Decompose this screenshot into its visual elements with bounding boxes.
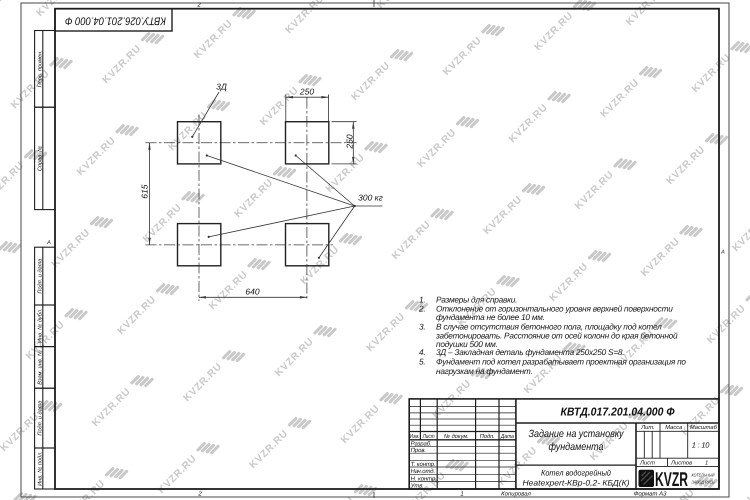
svg-text:300 кг: 300 кг [358, 193, 383, 203]
svg-text:КВТУ.026.201.04.000 Ф: КВТУ.026.201.04.000 Ф [65, 14, 166, 26]
svg-text:А: А [720, 250, 725, 256]
svg-text:Копировал: Копировал [501, 491, 531, 498]
svg-text:Масштаб: Масштаб [690, 424, 718, 431]
svg-text:фундамента: фундамента [549, 441, 604, 453]
svg-text:Инв. № дубл.: Инв. № дубл. [37, 309, 44, 343]
svg-text:Т. контр.: Т. контр. [411, 461, 436, 468]
svg-text:ЗАВОД РУСЬ: ЗАВОД РУСЬ [692, 480, 715, 485]
svg-text:нагрузкам на фундамент.: нагрузкам на фундамент. [436, 366, 533, 376]
svg-text:Котел водогрейный: Котел водогрейный [541, 469, 611, 478]
svg-text:Н. контр.: Н. контр. [411, 475, 437, 482]
svg-text:Подп. и дата: Подп. и дата [37, 259, 44, 294]
svg-text:Лист: Лист [639, 461, 655, 467]
svg-text:Дата: Дата [500, 434, 515, 440]
svg-text:2.: 2. [418, 304, 425, 314]
svg-text:1: 1 [705, 461, 708, 467]
svg-text:Формат А3: Формат А3 [634, 491, 667, 498]
svg-text:Лит.: Лит. [640, 425, 655, 431]
svg-text:Фундамент под котел разрабатыв: Фундамент под котел разрабатывает проект… [436, 356, 686, 366]
svg-text:2: 2 [196, 2, 201, 9]
svg-text:Взам. инв. №: Взам. инв. № [38, 350, 44, 385]
svg-text:640: 640 [245, 287, 259, 297]
svg-text:KVZR: KVZR [655, 469, 688, 491]
svg-text:КОТЕЛЬНЫЙ: КОТЕЛЬНЫЙ [692, 473, 715, 478]
svg-text:5.: 5. [419, 356, 425, 366]
svg-text:Листов: Листов [670, 461, 692, 467]
svg-text:А: А [46, 240, 51, 246]
svg-text:2: 2 [197, 491, 202, 498]
svg-text:Heatexpert-КВр-0,2- КБД(К): Heatexpert-КВр-0,2- КБД(К) [523, 479, 630, 488]
svg-text:1: 1 [460, 491, 463, 498]
svg-text:Пров.: Пров. [411, 447, 426, 454]
svg-text:Масса: Масса [665, 425, 683, 431]
svg-text:№ докум.: № докум. [444, 433, 469, 440]
svg-text:Справ. №: Справ. № [38, 146, 44, 171]
svg-text:Утв.: Утв. [410, 482, 424, 489]
svg-text:615: 615 [139, 184, 149, 198]
svg-text:Разраб.: Разраб. [411, 440, 432, 447]
svg-text:Перв. примен.: Перв. примен. [38, 50, 44, 87]
svg-text:Инв. № подл.: Инв. № подл. [37, 451, 44, 486]
svg-text:Подп.: Подп. [480, 433, 495, 440]
svg-text:КВТД.017.201.04.000 Ф: КВТД.017.201.04.000 Ф [561, 407, 675, 419]
svg-text:Задание на установку: Задание на установку [529, 428, 625, 440]
svg-text:1 : 10: 1 : 10 [692, 441, 711, 450]
svg-text:Нач.отд.: Нач.отд. [411, 468, 436, 475]
svg-text:250: 250 [344, 134, 354, 149]
svg-text:Изм.: Изм. [410, 434, 420, 440]
svg-text:3.: 3. [419, 321, 425, 331]
svg-text:3Д: 3Д [216, 82, 227, 92]
svg-text:250: 250 [299, 87, 314, 97]
svg-text:Подп. и дата: Подп. и дата [37, 401, 44, 436]
svg-text:Лист: Лист [422, 434, 435, 440]
